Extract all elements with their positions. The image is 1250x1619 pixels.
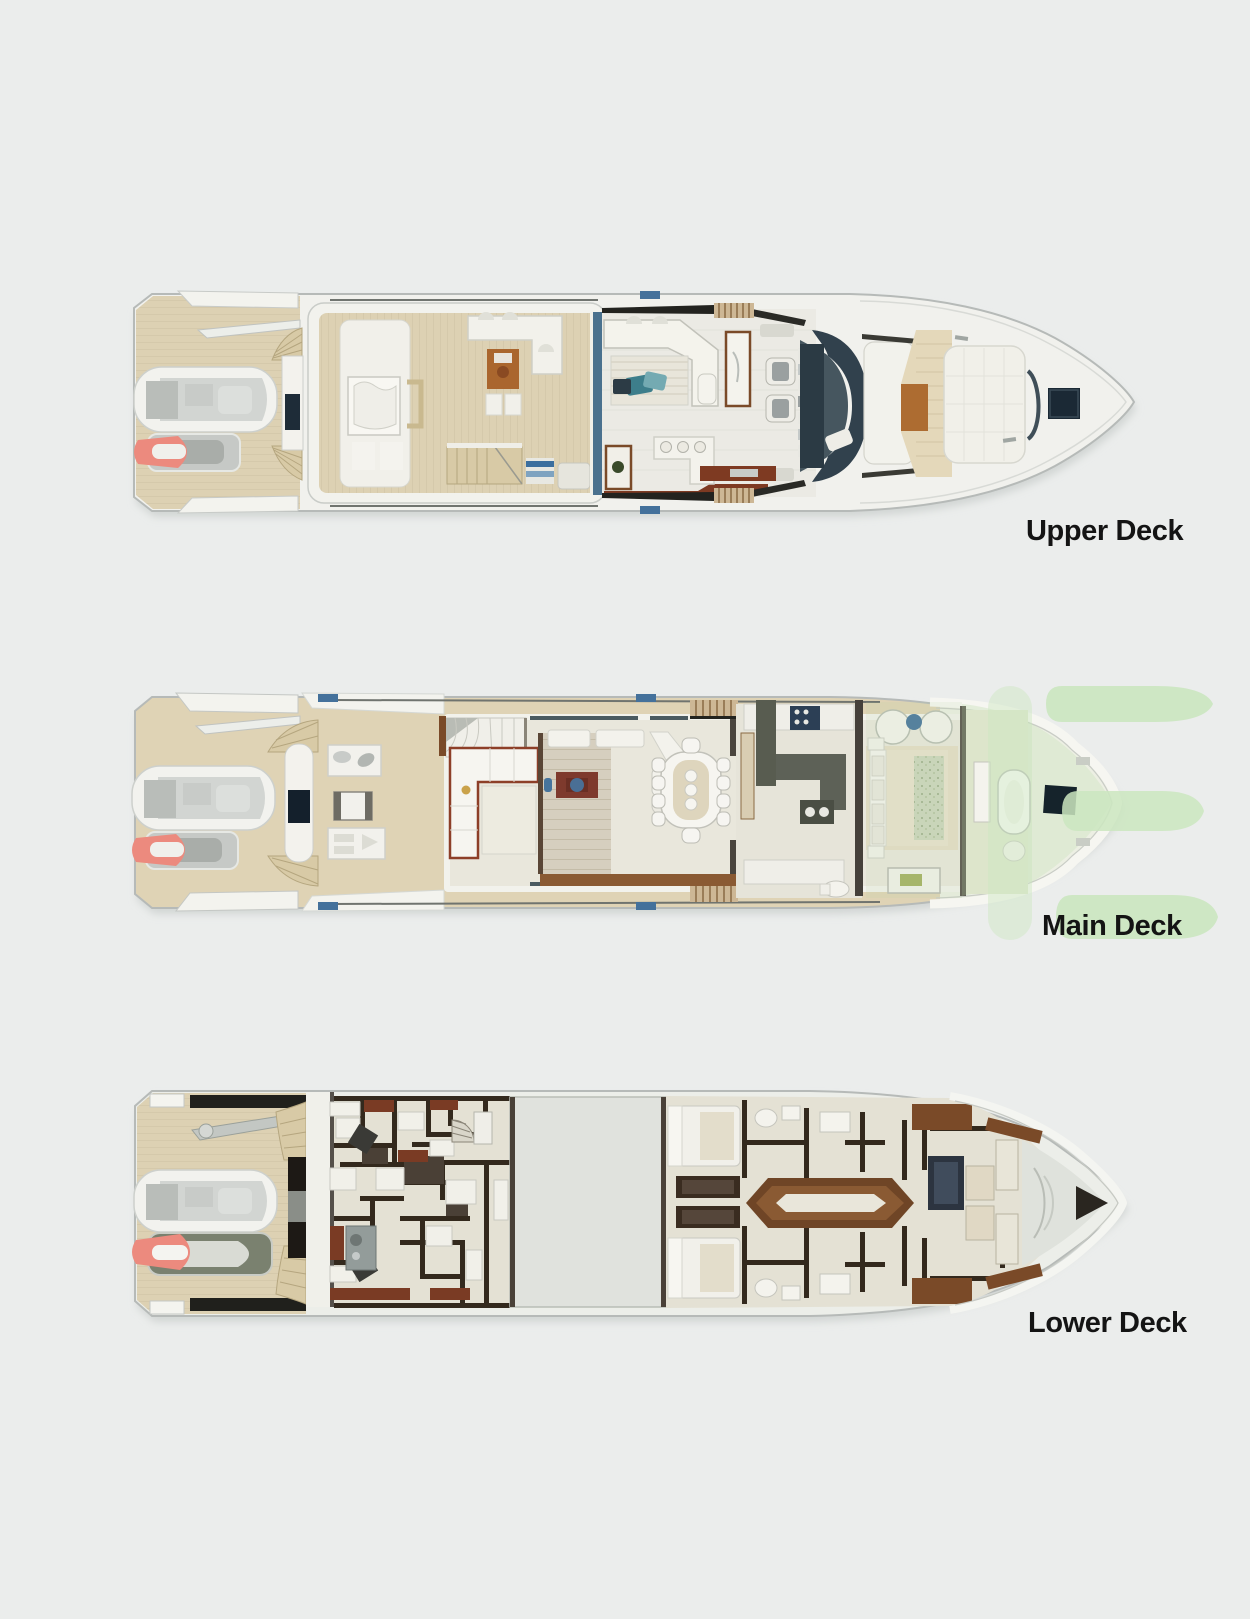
svg-text:Main Deck: Main Deck bbox=[1042, 910, 1183, 942]
svg-text:Lower Deck: Lower Deck bbox=[1028, 1307, 1188, 1339]
svg-text:Upper Deck: Upper Deck bbox=[1026, 515, 1184, 547]
